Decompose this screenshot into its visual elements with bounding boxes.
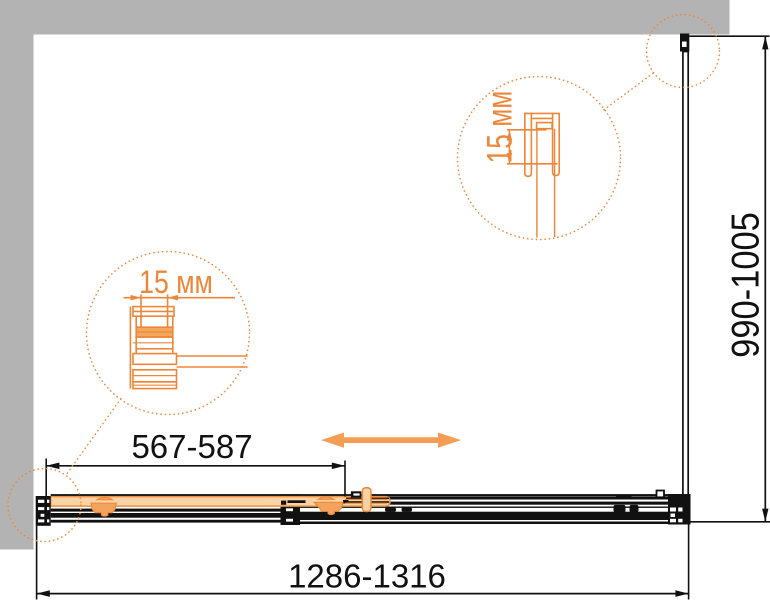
svg-text:1286-1316: 1286-1316 bbox=[288, 558, 446, 595]
svg-text:15 мм: 15 мм bbox=[139, 265, 213, 301]
svg-text:567-587: 567-587 bbox=[131, 428, 252, 465]
svg-text:15 мм: 15 мм bbox=[480, 91, 520, 164]
svg-text:990-1005: 990-1005 bbox=[724, 212, 767, 358]
